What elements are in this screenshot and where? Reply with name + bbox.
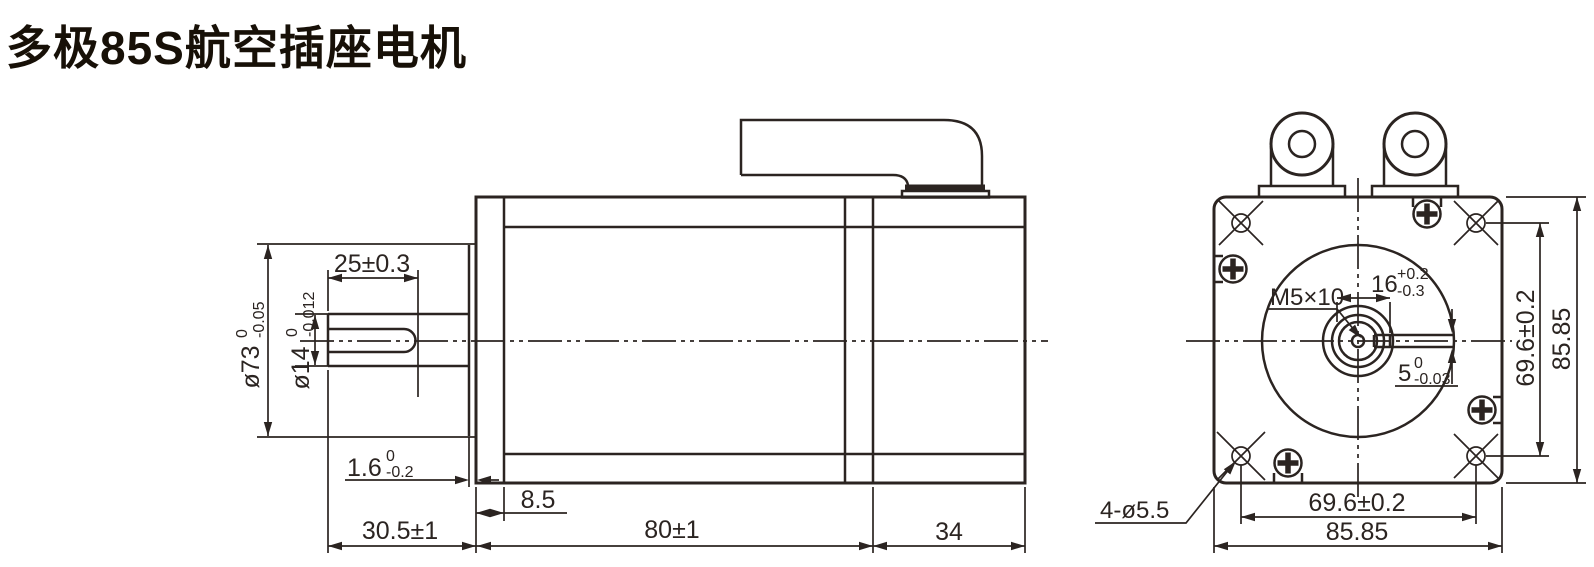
dim-hole-pitch-horizontal: 69.6±0.2 [1308, 489, 1405, 517]
svg-text:0: 0 [284, 328, 301, 337]
dim-key-width: 5 0 -0.03 [1398, 355, 1451, 388]
dim-flange-thickness: 8.5 [521, 486, 556, 514]
svg-text:1.6: 1.6 [347, 454, 382, 482]
side-view: 25±0.3 ø73 0 -0.05 ø14 [234, 120, 1048, 553]
side-dimensions: 25±0.3 ø73 0 -0.05 ø14 [234, 244, 1025, 553]
connector-lug-left [1259, 113, 1345, 197]
svg-text:0: 0 [234, 329, 251, 338]
phillips-screw-left [1215, 256, 1247, 283]
phillips-screw-top [1413, 198, 1441, 228]
dim-body-length: 80±1 [644, 516, 699, 544]
svg-text:+0.2: +0.2 [1397, 266, 1429, 283]
svg-text:-0.03: -0.03 [1414, 371, 1451, 388]
svg-text:16: 16 [1371, 271, 1398, 298]
svg-text:-0.05: -0.05 [251, 301, 268, 338]
dim-shaft-extension: 30.5±1 [362, 517, 438, 545]
svg-text:ø73: ø73 [237, 345, 265, 388]
svg-text:0: 0 [386, 448, 395, 465]
motor-shaft [328, 314, 469, 366]
svg-text:0: 0 [1414, 355, 1423, 372]
phillips-screw-right [1469, 397, 1502, 424]
connector-lug-right [1372, 113, 1458, 197]
front-view: M5×10 16 +0.2 -0.3 5 0 [1095, 113, 1586, 553]
dim-hole-pitch-vertical: 69.6±0.2 [1512, 289, 1540, 386]
svg-text:-0.3: -0.3 [1397, 283, 1425, 300]
dim-tapped-hole: M5×10 [1270, 284, 1344, 311]
technical-drawing-page: 多极85S航空插座电机 [0, 0, 1594, 567]
dim-frame-width: 85.85 [1326, 518, 1389, 546]
dim-frame-height: 85.85 [1548, 308, 1576, 371]
dim-shaft-key-length: 25±0.3 [334, 250, 410, 278]
dim-pilot-depth: 1.6 0 -0.2 [347, 448, 414, 482]
svg-text:-0.012: -0.012 [301, 292, 318, 337]
front-dimensions: M5×10 16 +0.2 -0.3 5 0 [1095, 197, 1586, 553]
dim-key-offset: 16 +0.2 -0.3 [1371, 266, 1429, 300]
dim-pilot-diameter: ø73 0 -0.05 [234, 301, 268, 388]
svg-text:-0.2: -0.2 [386, 464, 414, 481]
svg-text:5: 5 [1398, 360, 1411, 387]
aviation-connector-side [741, 120, 989, 198]
motor-dimension-drawing: 25±0.3 ø73 0 -0.05 ø14 [0, 0, 1594, 567]
svg-text:ø14: ø14 [287, 346, 315, 389]
dim-mount-holes-note: 4-ø5.5 [1100, 497, 1169, 524]
motor-body-side [476, 197, 1025, 483]
phillips-screw-bottom [1274, 450, 1302, 483]
dim-rear-length: 34 [935, 518, 963, 546]
